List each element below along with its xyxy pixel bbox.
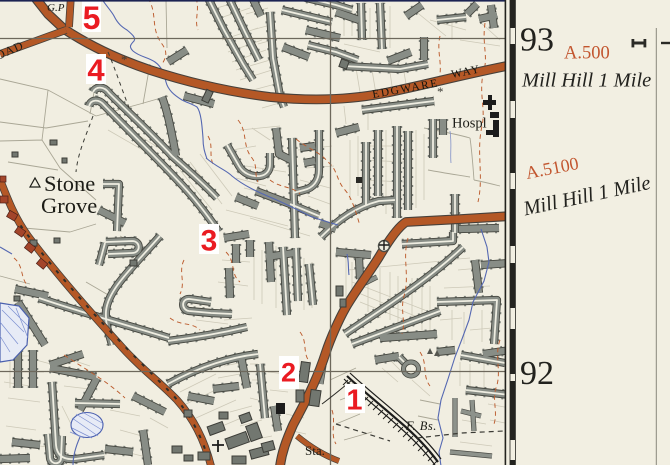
svg-text:4: 4	[87, 53, 105, 88]
svg-text:*: *	[121, 52, 128, 67]
svg-text:A.500: A.500	[564, 44, 610, 64]
svg-text:F. Bs.: F. Bs.	[405, 419, 437, 433]
svg-text:1: 1	[346, 385, 362, 417]
svg-text:93: 93	[520, 22, 554, 59]
svg-text:5: 5	[83, 0, 101, 36]
svg-text:Mill Hill 1 Mile: Mill Hill 1 Mile	[521, 70, 651, 92]
svg-text:2: 2	[281, 358, 296, 388]
svg-text:Sta.: Sta.	[305, 443, 325, 458]
svg-text:92: 92	[520, 355, 554, 392]
svg-text:Hospl: Hospl	[452, 116, 487, 132]
svg-text:Grove: Grove	[41, 193, 97, 218]
svg-text:3: 3	[201, 225, 218, 258]
svg-text:G.P: G.P	[47, 2, 65, 14]
